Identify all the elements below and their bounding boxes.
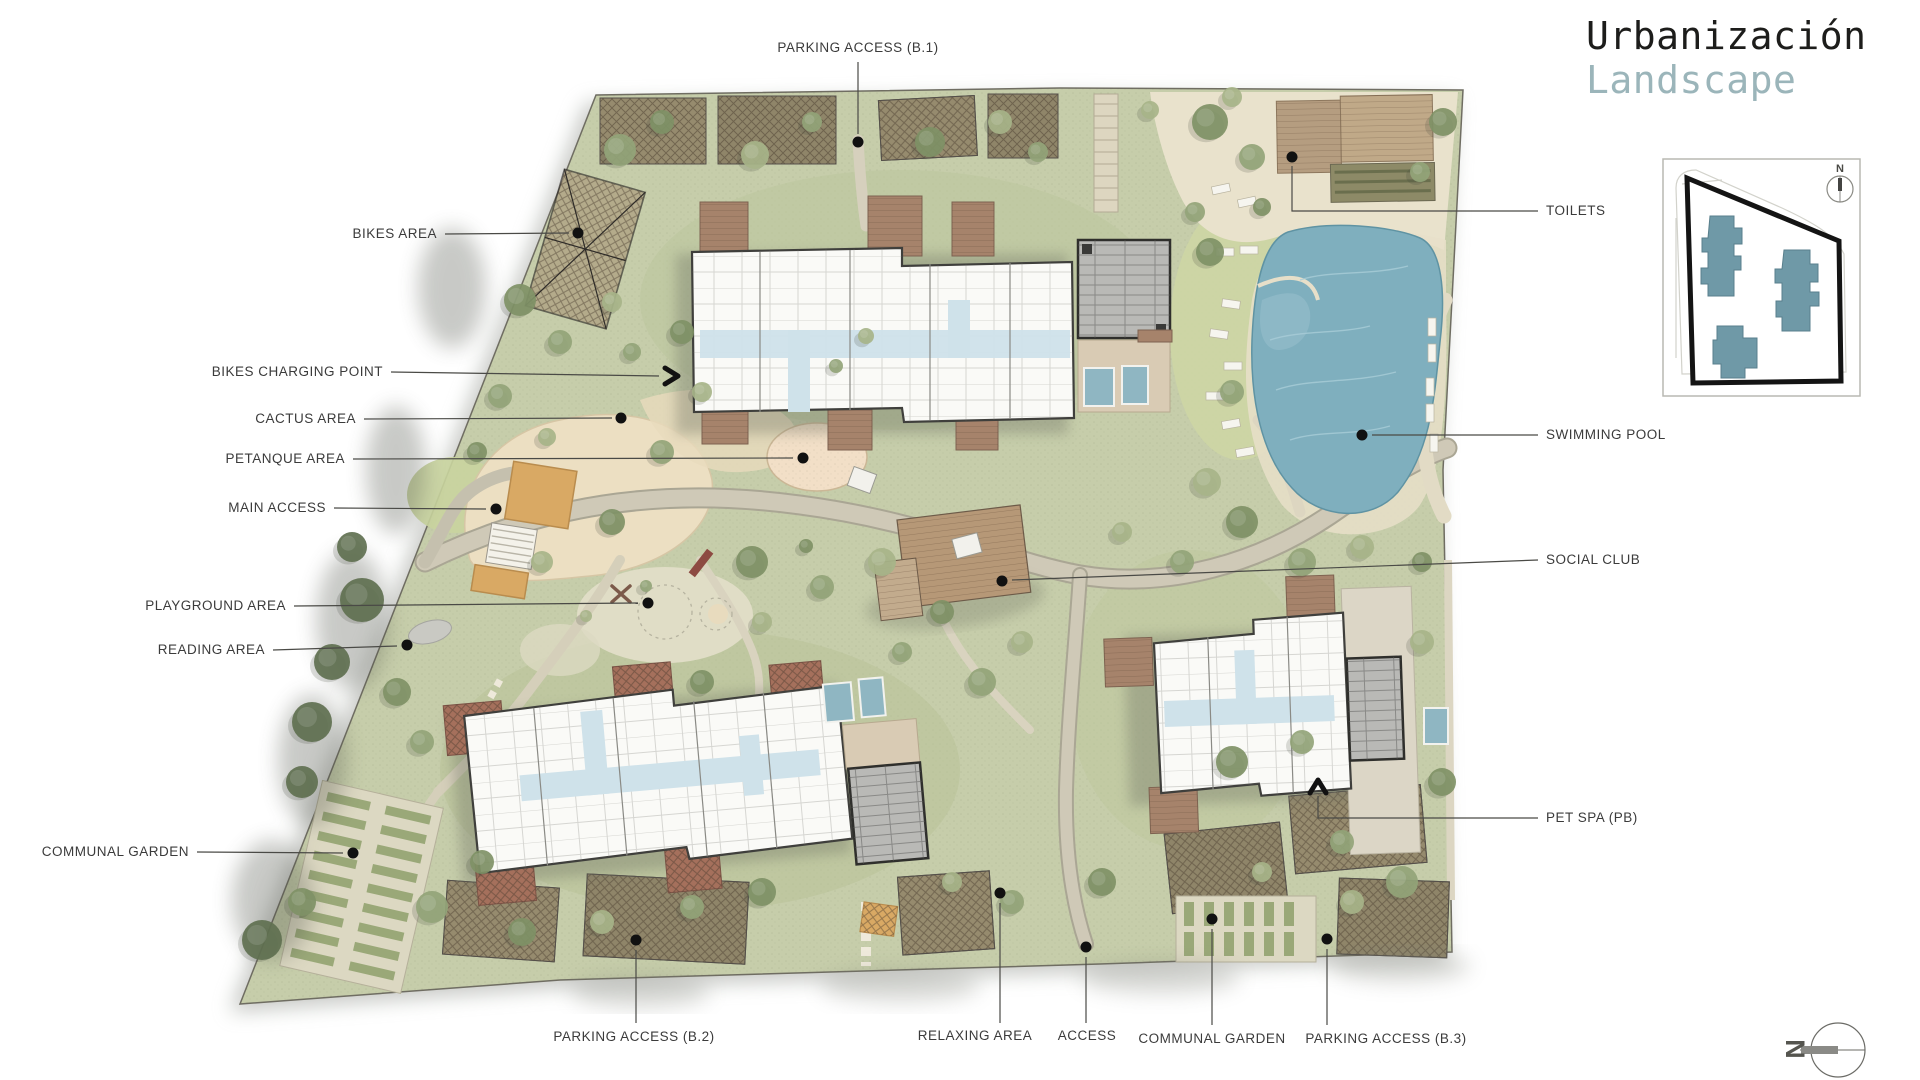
callout-bikes-area: BIKES AREA: [352, 225, 437, 243]
callout-bikes-charging-point: BIKES CHARGING POINT: [212, 363, 383, 381]
title-block: Urbanización Landscape: [1586, 14, 1867, 102]
callout-cactus-area: CACTUS AREA: [255, 410, 356, 428]
callout-main-access: MAIN ACCESS: [228, 499, 326, 517]
callout-reading-area: READING AREA: [158, 641, 265, 659]
callout-parking-access-b3: PARKING ACCESS (B.3): [1305, 1030, 1466, 1048]
landscape-masterplan: PARKING ACCESS (B.1)TOILETSSWIMMING POOL…: [0, 0, 1920, 1080]
north-letter: N: [1782, 1036, 1808, 1062]
callout-communal-garden-left: COMMUNAL GARDEN: [42, 843, 189, 861]
callout-access: ACCESS: [1058, 1027, 1117, 1045]
callout-pet-spa: PET SPA (PB): [1546, 809, 1638, 827]
callout-communal-garden-bottom: COMMUNAL GARDEN: [1138, 1030, 1285, 1048]
page-subtitle: Landscape: [1586, 58, 1867, 102]
keymap-north-label: N: [1836, 163, 1844, 175]
page-title: Urbanización: [1586, 14, 1867, 58]
callout-parking-access-b1: PARKING ACCESS (B.1): [777, 39, 938, 57]
plan-artwork: [0, 0, 1920, 1080]
callout-playground-area: PLAYGROUND AREA: [145, 597, 286, 615]
callout-parking-access-b2: PARKING ACCESS (B.2): [553, 1028, 714, 1046]
callout-relaxing-area: RELAXING AREA: [918, 1027, 1033, 1045]
callout-petanque-area: PETANQUE AREA: [225, 450, 345, 468]
callout-swimming-pool: SWIMMING POOL: [1546, 426, 1666, 444]
callout-social-club: SOCIAL CLUB: [1546, 551, 1640, 569]
callout-toilets: TOILETS: [1546, 202, 1606, 220]
key-map: N: [1662, 158, 1862, 398]
